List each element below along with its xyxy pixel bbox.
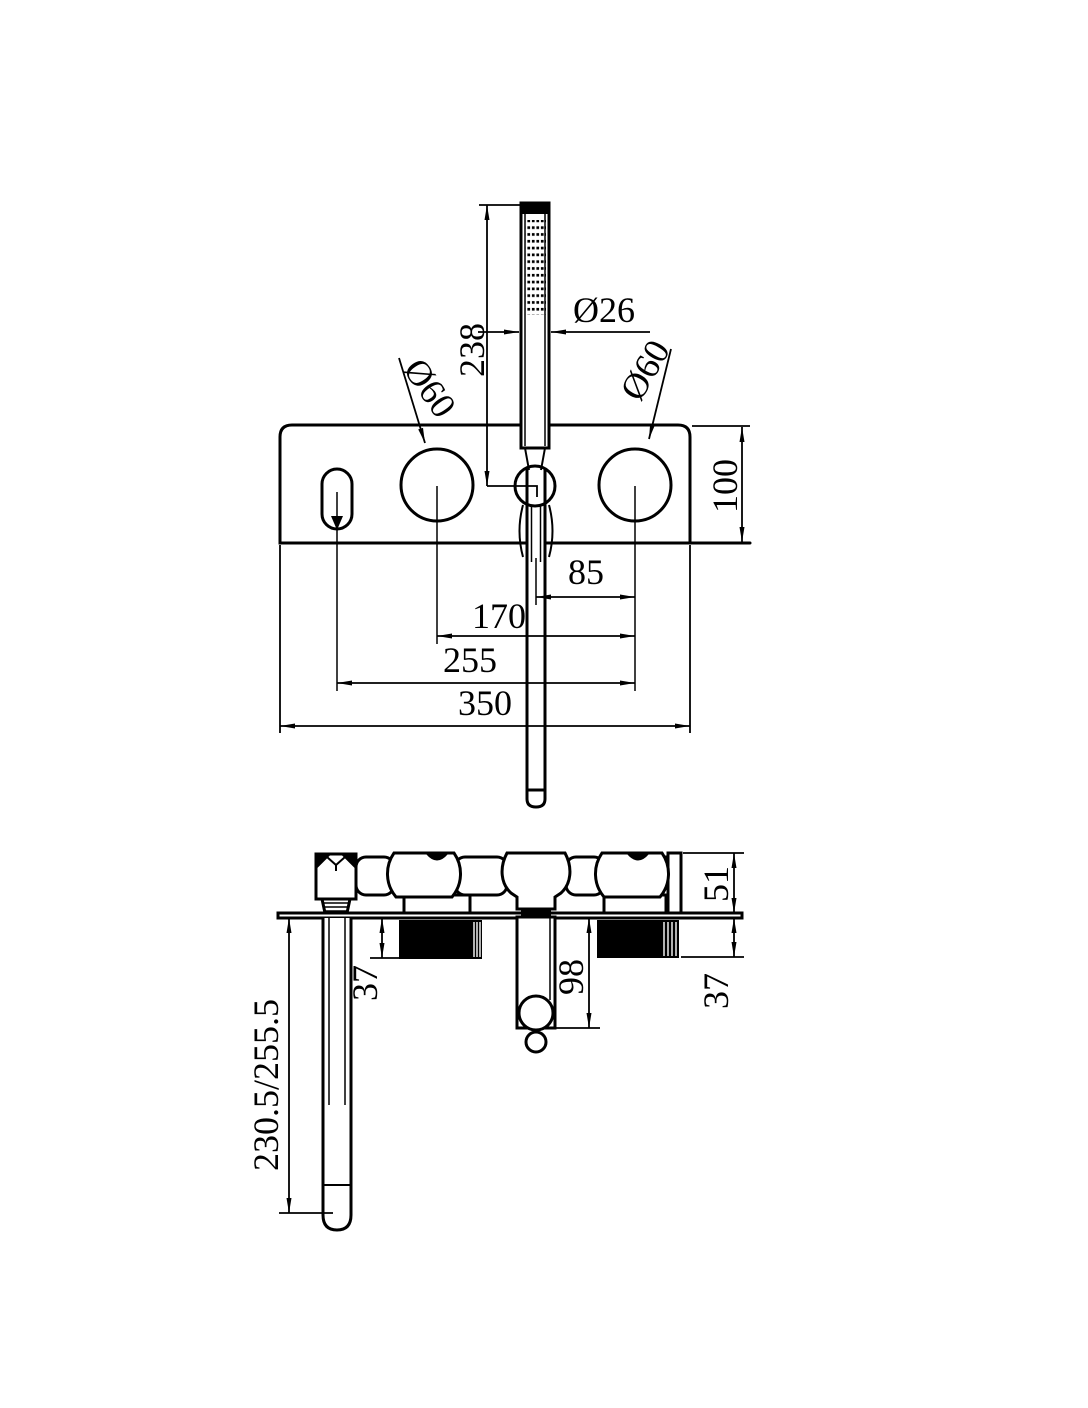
wall-spout: [323, 918, 351, 1230]
elbow-ball: [519, 996, 553, 1030]
technical-drawing: 238 Ø26 Ø60 Ø60 100 85: [0, 0, 1088, 1408]
body-end-block: [668, 853, 681, 913]
right-knob-barrel: [595, 853, 668, 897]
right-cartridge: [598, 921, 678, 957]
outlet-elbow: [517, 917, 555, 1052]
dim-26-label: Ø26: [573, 290, 635, 330]
dim-37-right-label: 37: [696, 973, 736, 1009]
center-holder-barrel: [502, 853, 570, 909]
dim-37-left-label: 37: [345, 965, 385, 1001]
hose-end-fitting: [527, 790, 545, 807]
side-view: 51 37 98 37 230.5/255.5: [246, 853, 744, 1230]
leader-diameter-60-right: Ø60: [612, 333, 678, 439]
dim-100-label: 100: [705, 459, 745, 513]
dim-85: 85: [536, 552, 635, 597]
wand-cap: [521, 203, 549, 214]
front-view: 238 Ø26 Ø60 Ø60 100 85: [280, 203, 750, 807]
dim-37-right: 37: [681, 918, 744, 1009]
dim-100: 100: [692, 426, 750, 542]
drawing-page: 238 Ø26 Ø60 Ø60 100 85: [0, 0, 1088, 1408]
dim-spout-length-label: 230.5/255.5: [246, 999, 286, 1171]
dim-255: 255: [337, 640, 635, 683]
body-connector: [455, 857, 507, 895]
dim-60-right-label: Ø60: [612, 333, 678, 407]
dim-spout-length: 230.5/255.5: [246, 918, 333, 1213]
spray-face: [525, 220, 547, 315]
left-knob-barrel: [387, 853, 460, 897]
dim-170-label: 170: [472, 596, 526, 636]
screw-block: [316, 854, 356, 913]
dim-350: 350: [280, 545, 690, 733]
dim-98-label: 98: [551, 959, 591, 995]
hose-nut: [526, 1032, 546, 1052]
dim-37-left: 37: [345, 918, 400, 1001]
left-cartridge: [400, 921, 481, 958]
diverter-slot: [322, 469, 352, 691]
valve-body: [316, 853, 681, 917]
dim-85-label: 85: [568, 552, 604, 592]
dim-350-label: 350: [458, 683, 512, 723]
dim-255-label: 255: [443, 640, 497, 680]
dim-51-label: 51: [696, 866, 736, 902]
dim-diameter-26: Ø26: [478, 290, 650, 332]
dim-51: 51: [683, 853, 744, 913]
